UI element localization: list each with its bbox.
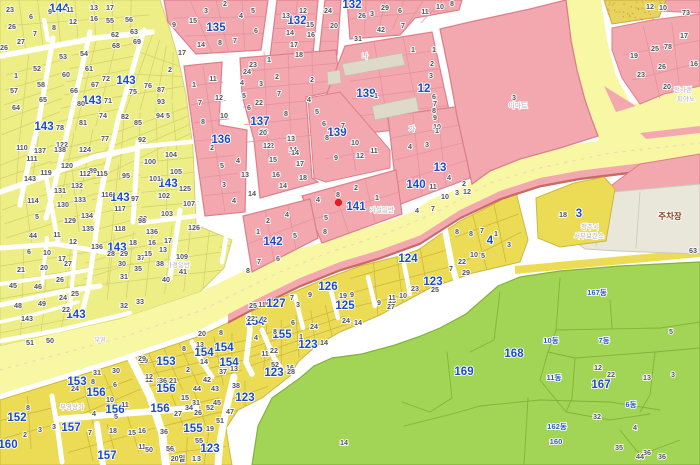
svg-text:24: 24 (59, 293, 67, 302)
svg-text:15: 15 (128, 428, 136, 437)
svg-text:140: 140 (406, 179, 425, 191)
svg-text:169: 169 (454, 366, 473, 378)
svg-text:14: 14 (340, 438, 348, 447)
svg-text:26: 26 (56, 275, 64, 284)
svg-text:25: 25 (431, 285, 439, 294)
svg-text:60: 60 (62, 70, 70, 79)
svg-text:17: 17 (296, 159, 304, 168)
svg-text:134: 134 (81, 211, 93, 220)
svg-text:23: 23 (6, 5, 14, 14)
svg-text:20: 20 (259, 128, 267, 137)
svg-text:29: 29 (120, 249, 128, 258)
svg-text:78: 78 (56, 123, 64, 132)
svg-text:2: 2 (186, 365, 190, 374)
svg-text:4: 4 (415, 206, 419, 215)
svg-text:26: 26 (358, 11, 366, 20)
svg-text:29: 29 (381, 3, 389, 12)
svg-text:32: 32 (593, 412, 601, 421)
svg-text:이마트: 이마트 (508, 101, 528, 110)
svg-text:130: 130 (57, 200, 69, 209)
svg-text:8: 8 (91, 377, 95, 386)
svg-text:8: 8 (469, 229, 473, 238)
svg-text:18: 18 (109, 426, 117, 435)
svg-text:143: 143 (158, 178, 177, 190)
svg-text:부영상가: 부영상가 (60, 402, 84, 411)
svg-text:4: 4 (239, 11, 243, 20)
svg-text:25: 25 (249, 301, 257, 310)
svg-text:12: 12 (356, 151, 364, 160)
svg-text:77: 77 (101, 134, 109, 143)
svg-text:8: 8 (273, 327, 277, 336)
svg-text:85: 85 (134, 118, 142, 127)
svg-text:5: 5 (315, 107, 319, 116)
svg-text:14: 14 (200, 357, 208, 366)
svg-text:133: 133 (74, 195, 86, 204)
svg-text:43: 43 (211, 384, 219, 393)
svg-text:8: 8 (284, 109, 288, 118)
svg-text:5: 5 (251, 6, 255, 15)
svg-text:3: 3 (197, 454, 201, 463)
svg-text:56: 56 (166, 444, 174, 453)
svg-text:2: 2 (210, 143, 214, 152)
svg-text:11: 11 (209, 74, 217, 83)
svg-text:서무보건소: 서무보건소 (574, 231, 604, 240)
svg-text:72: 72 (102, 74, 110, 83)
svg-text:152: 152 (7, 412, 26, 424)
svg-text:11: 11 (429, 182, 437, 191)
svg-text:6동: 6동 (625, 400, 636, 409)
svg-text:52: 52 (33, 64, 41, 73)
svg-text:18: 18 (559, 210, 567, 219)
svg-text:4: 4 (487, 235, 494, 247)
svg-text:67: 67 (91, 80, 99, 89)
svg-text:2: 2 (354, 183, 358, 192)
svg-text:1: 1 (411, 45, 415, 54)
svg-text:3: 3 (455, 188, 459, 197)
svg-text:13: 13 (282, 11, 290, 20)
svg-text:3: 3 (222, 180, 226, 189)
svg-text:2: 2 (223, 0, 227, 8)
svg-text:23: 23 (249, 60, 257, 69)
svg-text:8: 8 (219, 328, 223, 337)
svg-text:1: 1 (374, 91, 378, 100)
svg-text:81: 81 (79, 118, 87, 127)
svg-text:126: 126 (318, 281, 337, 293)
svg-text:27: 27 (174, 409, 182, 418)
svg-text:1: 1 (267, 55, 271, 64)
svg-text:136: 136 (91, 242, 103, 251)
svg-text:13: 13 (90, 3, 98, 12)
svg-text:8: 8 (323, 227, 327, 236)
svg-text:155: 155 (183, 423, 203, 435)
svg-text:16: 16 (148, 238, 156, 247)
svg-text:29: 29 (462, 268, 470, 277)
svg-text:14: 14 (286, 28, 294, 37)
svg-text:주차장: 주차장 (658, 211, 682, 221)
svg-text:153: 153 (156, 356, 175, 368)
svg-text:120: 120 (61, 161, 73, 170)
svg-text:36: 36 (159, 376, 167, 385)
svg-text:50: 50 (46, 336, 54, 345)
svg-text:25: 25 (651, 44, 659, 53)
svg-text:10: 10 (470, 250, 478, 259)
svg-text:15: 15 (306, 20, 314, 29)
svg-text:156: 156 (150, 403, 169, 415)
svg-text:22: 22 (607, 370, 615, 379)
svg-text:19: 19 (630, 51, 638, 60)
svg-text:3: 3 (52, 422, 56, 431)
svg-text:45: 45 (9, 281, 17, 290)
svg-text:105: 105 (170, 167, 182, 176)
svg-text:40: 40 (162, 275, 170, 284)
svg-text:3: 3 (259, 79, 263, 88)
svg-text:부영: 부영 (94, 336, 105, 344)
svg-text:71: 71 (104, 96, 112, 105)
svg-text:5: 5 (166, 111, 170, 120)
svg-text:138: 138 (54, 145, 66, 154)
svg-text:1: 1 (435, 126, 439, 135)
svg-text:7: 7 (341, 121, 345, 130)
svg-text:11: 11 (370, 146, 378, 155)
svg-text:24: 24 (71, 384, 79, 393)
svg-text:42: 42 (203, 375, 211, 384)
svg-text:10: 10 (436, 2, 444, 11)
svg-text:12: 12 (69, 17, 77, 26)
svg-text:76: 76 (144, 81, 152, 90)
svg-text:141: 141 (346, 201, 366, 213)
svg-text:11: 11 (261, 349, 269, 358)
svg-text:3: 3 (296, 300, 300, 309)
svg-text:57: 57 (10, 86, 18, 95)
svg-text:16: 16 (307, 30, 315, 39)
svg-text:27: 27 (64, 259, 72, 268)
svg-text:3: 3 (425, 140, 429, 149)
svg-text:4: 4 (240, 78, 244, 87)
svg-text:8: 8 (455, 227, 459, 236)
svg-text:93: 93 (157, 97, 165, 106)
svg-text:143: 143 (82, 95, 101, 107)
svg-text:5: 5 (35, 212, 39, 221)
svg-text:14: 14 (291, 148, 299, 157)
svg-text:1: 1 (192, 80, 196, 89)
svg-text:11동: 11동 (546, 373, 561, 382)
svg-text:22: 22 (270, 346, 278, 355)
svg-text:3: 3 (671, 370, 675, 379)
svg-text:8: 8 (336, 190, 340, 199)
svg-text:7: 7 (277, 89, 281, 98)
svg-text:13: 13 (196, 340, 204, 349)
svg-text:154: 154 (214, 342, 234, 354)
svg-text:23: 23 (637, 70, 645, 79)
svg-text:16: 16 (90, 14, 98, 23)
svg-text:124: 124 (79, 145, 91, 154)
svg-text:32: 32 (120, 301, 128, 310)
svg-text:7: 7 (401, 21, 405, 30)
svg-text:143: 143 (34, 121, 53, 133)
svg-text:9: 9 (350, 290, 354, 299)
svg-text:7: 7 (431, 204, 435, 213)
svg-text:44: 44 (29, 231, 37, 240)
svg-text:37: 37 (219, 367, 227, 376)
svg-text:20: 20 (330, 21, 338, 30)
svg-text:101: 101 (149, 174, 161, 183)
svg-text:3: 3 (204, 6, 208, 15)
svg-text:92: 92 (138, 135, 146, 144)
svg-text:36: 36 (643, 448, 651, 457)
svg-text:38: 38 (232, 381, 240, 390)
svg-text:23: 23 (411, 284, 419, 293)
svg-text:가: 가 (409, 124, 416, 133)
svg-text:35: 35 (615, 443, 623, 452)
svg-text:75: 75 (129, 87, 137, 96)
svg-text:104: 104 (165, 150, 177, 159)
svg-text:12: 12 (418, 83, 431, 95)
svg-text:9: 9 (308, 290, 312, 299)
svg-text:157: 157 (61, 422, 80, 434)
svg-text:61: 61 (85, 64, 93, 73)
svg-text:111: 111 (26, 154, 37, 163)
svg-text:124: 124 (398, 253, 418, 265)
svg-text:5: 5 (242, 91, 246, 100)
svg-text:52: 52 (271, 360, 279, 369)
svg-text:9: 9 (377, 298, 381, 307)
svg-text:160: 160 (550, 437, 563, 446)
svg-text:95: 95 (122, 171, 130, 180)
svg-text:123: 123 (200, 443, 219, 455)
svg-text:1: 1 (375, 193, 379, 202)
svg-text:168: 168 (504, 348, 524, 360)
svg-text:87: 87 (157, 85, 165, 94)
svg-text:8: 8 (182, 344, 186, 353)
svg-text:2: 2 (168, 65, 172, 74)
svg-text:143: 143 (110, 192, 129, 204)
svg-text:4: 4 (307, 95, 311, 104)
svg-text:36: 36 (160, 427, 168, 436)
svg-text:14: 14 (320, 338, 328, 347)
svg-text:12: 12 (263, 141, 271, 150)
svg-text:9: 9 (172, 20, 176, 29)
svg-text:나: 나 (362, 51, 368, 60)
svg-text:3: 3 (507, 240, 511, 249)
svg-text:10: 10 (351, 138, 359, 147)
svg-text:27: 27 (17, 37, 25, 46)
svg-text:가설일반: 가설일반 (370, 205, 394, 214)
svg-text:17: 17 (290, 40, 298, 49)
svg-text:3: 3 (370, 9, 374, 18)
svg-text:청주시: 청주시 (581, 223, 599, 231)
svg-text:6: 6 (322, 119, 326, 128)
svg-text:10: 10 (399, 291, 407, 300)
svg-text:20: 20 (198, 329, 206, 338)
svg-text:7: 7 (88, 428, 92, 437)
svg-text:69: 69 (133, 37, 141, 46)
svg-text:58: 58 (37, 80, 45, 89)
svg-text:51: 51 (216, 416, 224, 425)
svg-text:12: 12 (646, 2, 654, 11)
svg-text:20: 20 (663, 82, 671, 91)
svg-text:7: 7 (198, 98, 202, 107)
svg-text:17: 17 (106, 3, 114, 12)
svg-text:78: 78 (664, 42, 672, 51)
svg-text:132: 132 (71, 181, 83, 190)
svg-text:143: 143 (21, 314, 33, 323)
svg-text:7: 7 (290, 293, 294, 302)
svg-text:2: 2 (275, 72, 279, 81)
svg-text:135: 135 (206, 22, 226, 34)
svg-text:135: 135 (82, 224, 94, 233)
svg-text:31: 31 (354, 34, 362, 43)
svg-text:68: 68 (112, 41, 120, 50)
svg-text:17: 17 (164, 236, 172, 245)
svg-text:15: 15 (189, 16, 197, 25)
svg-text:4: 4 (92, 409, 96, 418)
svg-text:30: 30 (112, 366, 120, 375)
svg-text:15: 15 (269, 155, 277, 164)
svg-text:44: 44 (193, 384, 201, 393)
svg-text:116: 116 (101, 190, 113, 199)
svg-text:10: 10 (220, 111, 228, 120)
svg-text:13: 13 (159, 245, 167, 254)
svg-text:5: 5 (293, 231, 297, 240)
svg-text:4: 4 (316, 195, 320, 204)
svg-text:12: 12 (594, 363, 602, 372)
svg-text:102: 102 (158, 191, 170, 200)
svg-text:4: 4 (254, 333, 258, 342)
svg-text:126: 126 (188, 223, 200, 232)
svg-text:18: 18 (129, 238, 137, 247)
svg-text:4: 4 (447, 173, 451, 182)
svg-text:47: 47 (226, 407, 234, 416)
svg-text:4: 4 (285, 210, 289, 219)
svg-text:2: 2 (263, 315, 267, 324)
svg-text:54: 54 (80, 49, 88, 58)
svg-text:31: 31 (120, 272, 128, 281)
svg-text:143: 143 (24, 174, 36, 183)
svg-text:33: 33 (136, 297, 144, 306)
svg-text:66: 66 (70, 86, 78, 95)
svg-text:12: 12 (299, 6, 307, 15)
svg-text:103: 103 (161, 209, 173, 218)
svg-text:11: 11 (121, 400, 129, 409)
svg-text:8: 8 (218, 38, 222, 47)
svg-text:74: 74 (99, 111, 107, 120)
svg-text:10동: 10동 (543, 336, 558, 345)
svg-text:11: 11 (421, 7, 429, 16)
svg-text:5: 5 (220, 161, 224, 170)
svg-text:19: 19 (339, 291, 347, 300)
svg-text:55: 55 (195, 436, 203, 445)
svg-text:15: 15 (181, 393, 189, 402)
svg-text:11: 11 (66, 5, 74, 14)
svg-text:4: 4 (236, 156, 240, 165)
svg-text:157: 157 (97, 450, 116, 462)
svg-text:피아노: 피아노 (677, 94, 695, 103)
svg-text:6: 6 (398, 6, 402, 15)
svg-text:8: 8 (52, 23, 56, 32)
svg-text:49: 49 (38, 299, 46, 308)
svg-text:11: 11 (53, 230, 61, 239)
svg-text:14: 14 (248, 189, 256, 198)
svg-text:8: 8 (246, 266, 250, 275)
svg-text:11: 11 (388, 293, 396, 302)
svg-text:136: 136 (146, 227, 158, 236)
svg-text:123: 123 (235, 392, 254, 404)
svg-text:167: 167 (591, 379, 610, 391)
svg-text:1: 1 (432, 45, 436, 54)
svg-text:10: 10 (659, 3, 667, 12)
svg-text:36: 36 (658, 452, 666, 461)
svg-text:107: 107 (183, 199, 195, 208)
svg-text:1: 1 (494, 229, 498, 238)
svg-text:6: 6 (29, 12, 33, 21)
svg-text:125: 125 (179, 184, 191, 193)
svg-text:13: 13 (643, 373, 651, 382)
svg-text:7: 7 (480, 226, 484, 235)
svg-text:2: 2 (310, 75, 314, 84)
svg-text:25: 25 (71, 289, 79, 298)
svg-text:132: 132 (342, 0, 361, 11)
svg-text:63: 63 (130, 27, 138, 36)
svg-text:129: 129 (64, 216, 76, 225)
svg-text:11: 11 (258, 300, 266, 309)
svg-text:14: 14 (354, 318, 362, 327)
svg-text:19: 19 (206, 424, 214, 433)
svg-text:48: 48 (14, 301, 22, 310)
svg-text:156: 156 (86, 387, 105, 399)
svg-text:3: 3 (429, 71, 433, 80)
svg-text:26: 26 (194, 408, 202, 417)
svg-text:21: 21 (169, 376, 177, 385)
svg-text:13: 13 (230, 364, 238, 373)
svg-text:5: 5 (481, 251, 485, 260)
svg-text:20: 20 (40, 263, 48, 272)
svg-text:2: 2 (430, 59, 434, 68)
svg-text:22: 22 (62, 305, 70, 314)
svg-text:14: 14 (279, 181, 287, 190)
svg-text:162동: 162동 (547, 422, 567, 431)
svg-text:118: 118 (114, 224, 126, 233)
svg-text:17: 17 (178, 48, 186, 57)
svg-text:35: 35 (134, 264, 142, 273)
svg-text:55: 55 (106, 16, 114, 25)
svg-text:112: 112 (79, 169, 91, 178)
svg-text:6: 6 (254, 26, 258, 35)
svg-text:22: 22 (255, 98, 263, 107)
svg-text:3: 3 (38, 425, 42, 434)
svg-text:9: 9 (48, 7, 52, 16)
svg-text:17: 17 (680, 31, 688, 40)
svg-text:30: 30 (118, 259, 126, 268)
svg-text:16: 16 (690, 59, 698, 68)
svg-text:13: 13 (241, 170, 249, 179)
svg-text:12: 12 (215, 93, 223, 102)
svg-text:가경일반: 가경일반 (166, 260, 190, 269)
svg-text:167동: 167동 (587, 288, 607, 297)
svg-text:80: 80 (77, 99, 85, 108)
svg-text:131: 131 (54, 186, 66, 195)
svg-text:125: 125 (335, 300, 355, 312)
svg-text:160: 160 (0, 439, 18, 451)
svg-text:73: 73 (682, 8, 690, 17)
svg-text:15: 15 (144, 249, 152, 258)
svg-text:2: 2 (23, 430, 27, 439)
svg-text:10: 10 (441, 192, 449, 201)
svg-text:1: 1 (14, 71, 18, 80)
svg-text:119: 119 (40, 168, 52, 177)
svg-text:142: 142 (263, 236, 282, 248)
svg-text:22: 22 (458, 257, 466, 266)
svg-text:12: 12 (145, 372, 153, 381)
